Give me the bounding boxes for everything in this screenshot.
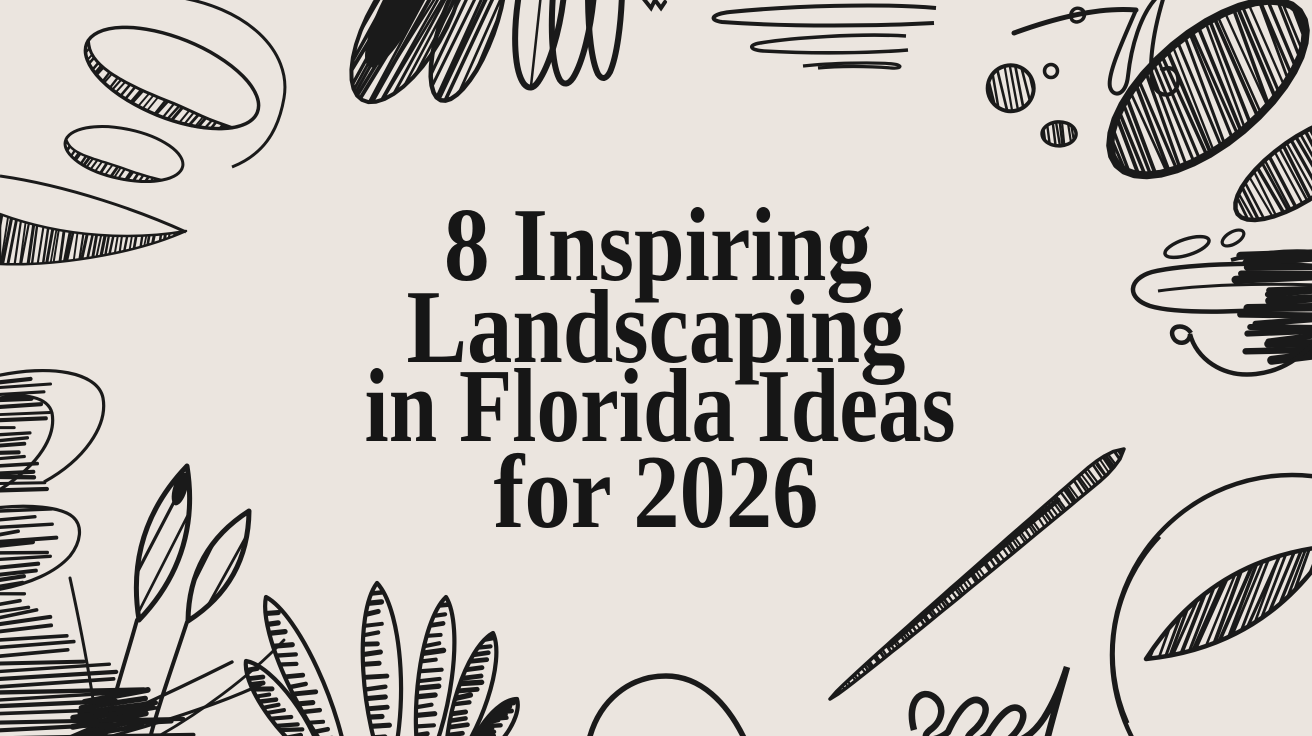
svg-text:for 2026: for 2026	[494, 433, 819, 550]
